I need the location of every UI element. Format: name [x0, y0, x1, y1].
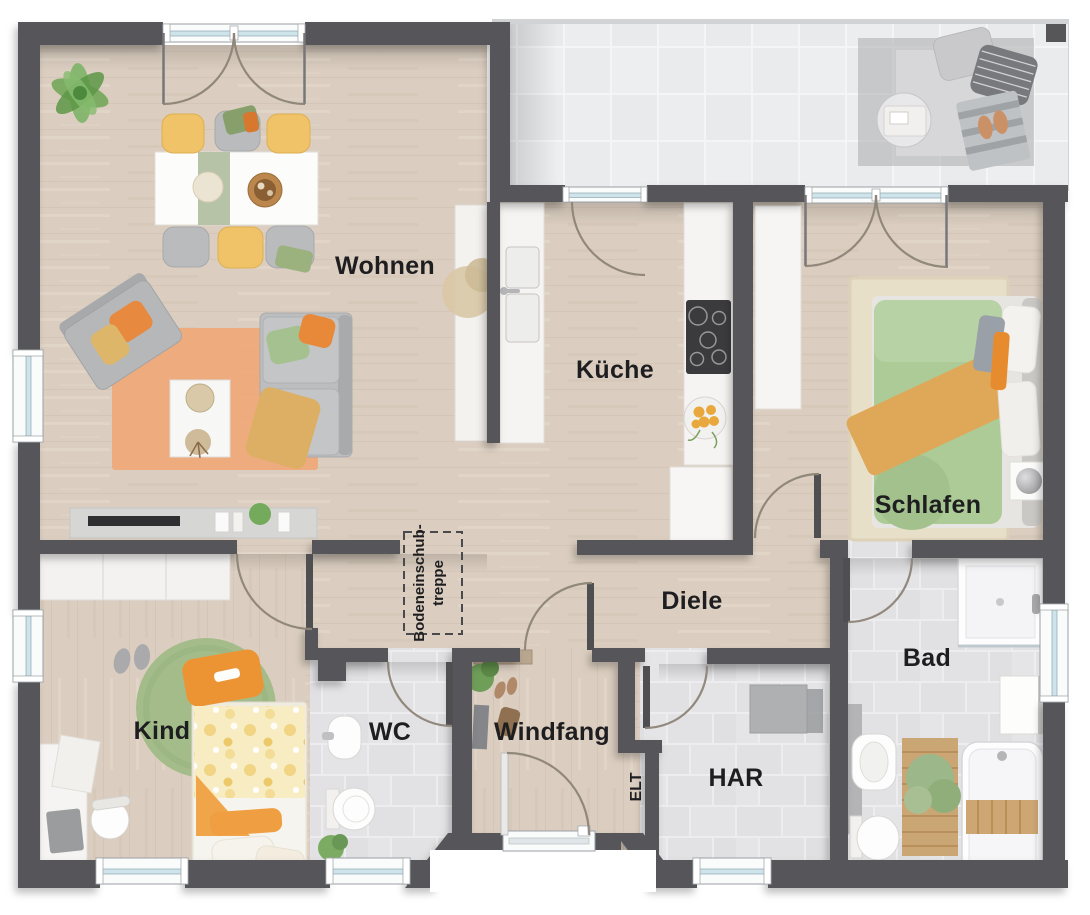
door-leaf-windfang [587, 583, 594, 650]
kind-desk-panel [52, 735, 100, 793]
kitchen-faucet-arm [504, 289, 520, 293]
wc-plant [332, 834, 348, 850]
room-label-kueche: Küche [576, 356, 654, 384]
dining-chair-gray [163, 227, 209, 267]
bowl-deco [267, 190, 273, 196]
bad-toilet-bowl [857, 816, 899, 860]
room-label-diele: Diele [661, 587, 722, 615]
entry-mirror [472, 705, 489, 750]
books [233, 512, 243, 532]
terrace [492, 19, 1069, 191]
har-appliance-side [807, 689, 823, 733]
door-leaf-bad [843, 558, 850, 622]
har-furniture [750, 685, 823, 733]
room-label-kind: Kind [134, 717, 191, 745]
room-label-windfang: Windfang [494, 718, 610, 746]
laptop [46, 808, 84, 853]
floor-har-tiles [640, 648, 832, 862]
window-wc-bottom [326, 858, 410, 884]
porch-exterior [430, 850, 656, 892]
har-appliance [750, 685, 807, 733]
door-leaf-schlafen [814, 474, 821, 538]
bowl-deco [258, 183, 265, 190]
floorplan-svg: Wohnen Küche Schlafen Diele Bad Kind WC … [0, 0, 1090, 915]
dining-table [155, 152, 318, 225]
dining-chair-yellow [267, 114, 310, 153]
window-kind-bottom [96, 858, 188, 884]
shower-drain [996, 598, 1004, 606]
window-bad-right [1040, 604, 1068, 702]
door-leaf-kind [306, 554, 313, 629]
bathtub-caddy [966, 800, 1038, 834]
books [278, 512, 290, 532]
shadow-wohnen-top [40, 45, 487, 71]
books [215, 512, 229, 532]
bathtub-faucet [997, 751, 1007, 761]
bed-pillow-white [997, 381, 1040, 457]
room-label-elt: ELT [628, 772, 645, 801]
kind-closet [40, 553, 230, 600]
room-label-wc: WC [369, 718, 411, 746]
kind-bolster-orange [209, 808, 282, 837]
sofa [243, 312, 352, 471]
dining-chair-yellow [162, 114, 204, 153]
room-label-bad: Bad [903, 644, 951, 672]
wc-faucet [322, 732, 334, 740]
towel-green [927, 779, 961, 813]
table-bowl-inner [254, 179, 276, 201]
shower-fixture [1032, 594, 1040, 614]
window-wohnen-left [13, 350, 43, 442]
table-flowers [193, 172, 223, 202]
shadow-har-top [659, 664, 830, 680]
room-label-wohnen: Wohnen [335, 252, 435, 280]
door-leaf-entry [501, 753, 508, 835]
kitchen-tall-cabinet [670, 467, 732, 541]
tv [88, 516, 180, 526]
door-leaf-wc [446, 662, 453, 726]
attic-stair-label-line1: Bodeneinschub- [411, 524, 428, 642]
wardrobe [755, 206, 801, 409]
door-leaf-har [643, 666, 650, 728]
window-har-bottom [693, 858, 771, 884]
kind-duvet-dotted [194, 706, 305, 798]
kitchen-sink-basin [506, 247, 539, 288]
floorplan-page: Wohnen Küche Schlafen Diele Bad Kind WC … [0, 0, 1090, 915]
wall-shelf [455, 205, 487, 441]
towel-green [904, 786, 932, 814]
terrace-corner-post [1046, 24, 1066, 42]
sideboard-plant [249, 503, 271, 525]
room-label-schlafen: Schlafen [875, 491, 982, 519]
dining-chair-yellow [218, 227, 263, 268]
bathtub [962, 742, 1043, 878]
window-kind-left [13, 610, 43, 682]
attic-stair-label-line2: treppe [430, 560, 447, 606]
coffee-table-bowl [186, 384, 214, 412]
room-label-har: HAR [708, 764, 763, 792]
kitchen-sink-basin [506, 294, 539, 342]
terrace-wall-shadow [510, 24, 558, 190]
window-kueche [563, 187, 647, 202]
bad-sink-basin [860, 742, 888, 782]
terrace-tray-card [890, 112, 908, 124]
nightstand-lamp [1016, 468, 1042, 494]
